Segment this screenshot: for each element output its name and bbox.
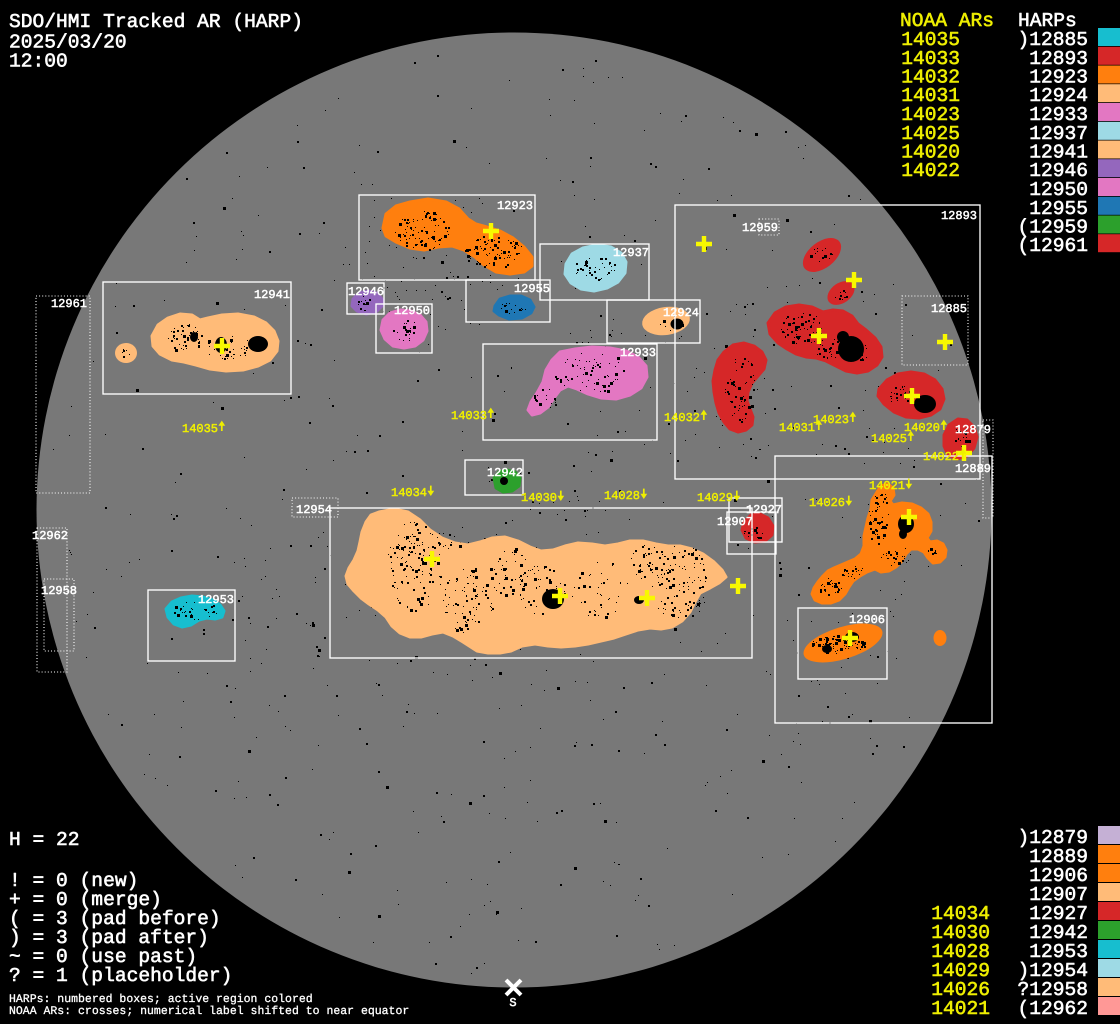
svg-text:14021: 14021 [931, 998, 990, 1020]
svg-text:14033: 14033 [451, 409, 487, 423]
svg-text:14031: 14031 [779, 421, 815, 435]
svg-text:14026: 14026 [809, 496, 845, 510]
svg-text:SDO/HMI Tracked AR (HARP): SDO/HMI Tracked AR (HARP) [9, 11, 303, 33]
svg-text:(12962: (12962 [1017, 998, 1088, 1020]
svg-text:12933: 12933 [620, 346, 656, 360]
svg-text:14022: 14022 [923, 450, 959, 464]
svg-text:14029: 14029 [697, 491, 733, 505]
svg-text:14035: 14035 [182, 422, 218, 436]
svg-text:14022: 14022 [901, 160, 960, 182]
svg-text:12950: 12950 [394, 304, 430, 318]
svg-text:12906: 12906 [849, 613, 885, 627]
svg-text:14023: 14023 [813, 413, 849, 427]
svg-text:14032: 14032 [664, 411, 700, 425]
svg-text:14025: 14025 [871, 432, 907, 446]
svg-text:12961: 12961 [51, 297, 87, 311]
svg-text:14030: 14030 [521, 491, 557, 505]
svg-text:12885: 12885 [931, 302, 967, 316]
svg-text:12953: 12953 [198, 593, 234, 607]
svg-text:12954: 12954 [296, 503, 332, 517]
svg-text:14028: 14028 [604, 489, 640, 503]
svg-text:H = 22: H = 22 [9, 829, 80, 851]
svg-text:12889: 12889 [955, 462, 991, 476]
svg-text:NOAA ARs: crosses; numerical l: NOAA ARs: crosses; numerical label shift… [9, 1005, 409, 1018]
svg-text:12907: 12907 [717, 515, 753, 529]
svg-text:S: S [509, 996, 516, 1010]
svg-text:(12961: (12961 [1017, 235, 1088, 257]
svg-text:12879: 12879 [955, 423, 991, 437]
svg-text:12937: 12937 [613, 246, 649, 260]
svg-text:14034: 14034 [391, 486, 427, 500]
svg-text:12962: 12962 [32, 529, 68, 543]
svg-text:12923: 12923 [497, 199, 533, 213]
svg-text:12924: 12924 [663, 306, 699, 320]
svg-text:12959: 12959 [742, 221, 778, 235]
svg-text:12893: 12893 [941, 209, 977, 223]
svg-text:12946: 12946 [348, 285, 384, 299]
svg-text:12:00: 12:00 [9, 51, 68, 73]
svg-text:? = 1 (placeholder): ? = 1 (placeholder) [9, 965, 232, 987]
svg-text:12941: 12941 [254, 288, 290, 302]
svg-text:12942: 12942 [487, 466, 523, 480]
svg-text:14021: 14021 [869, 479, 905, 493]
svg-text:12955: 12955 [514, 282, 550, 296]
svg-text:12958: 12958 [41, 584, 77, 598]
